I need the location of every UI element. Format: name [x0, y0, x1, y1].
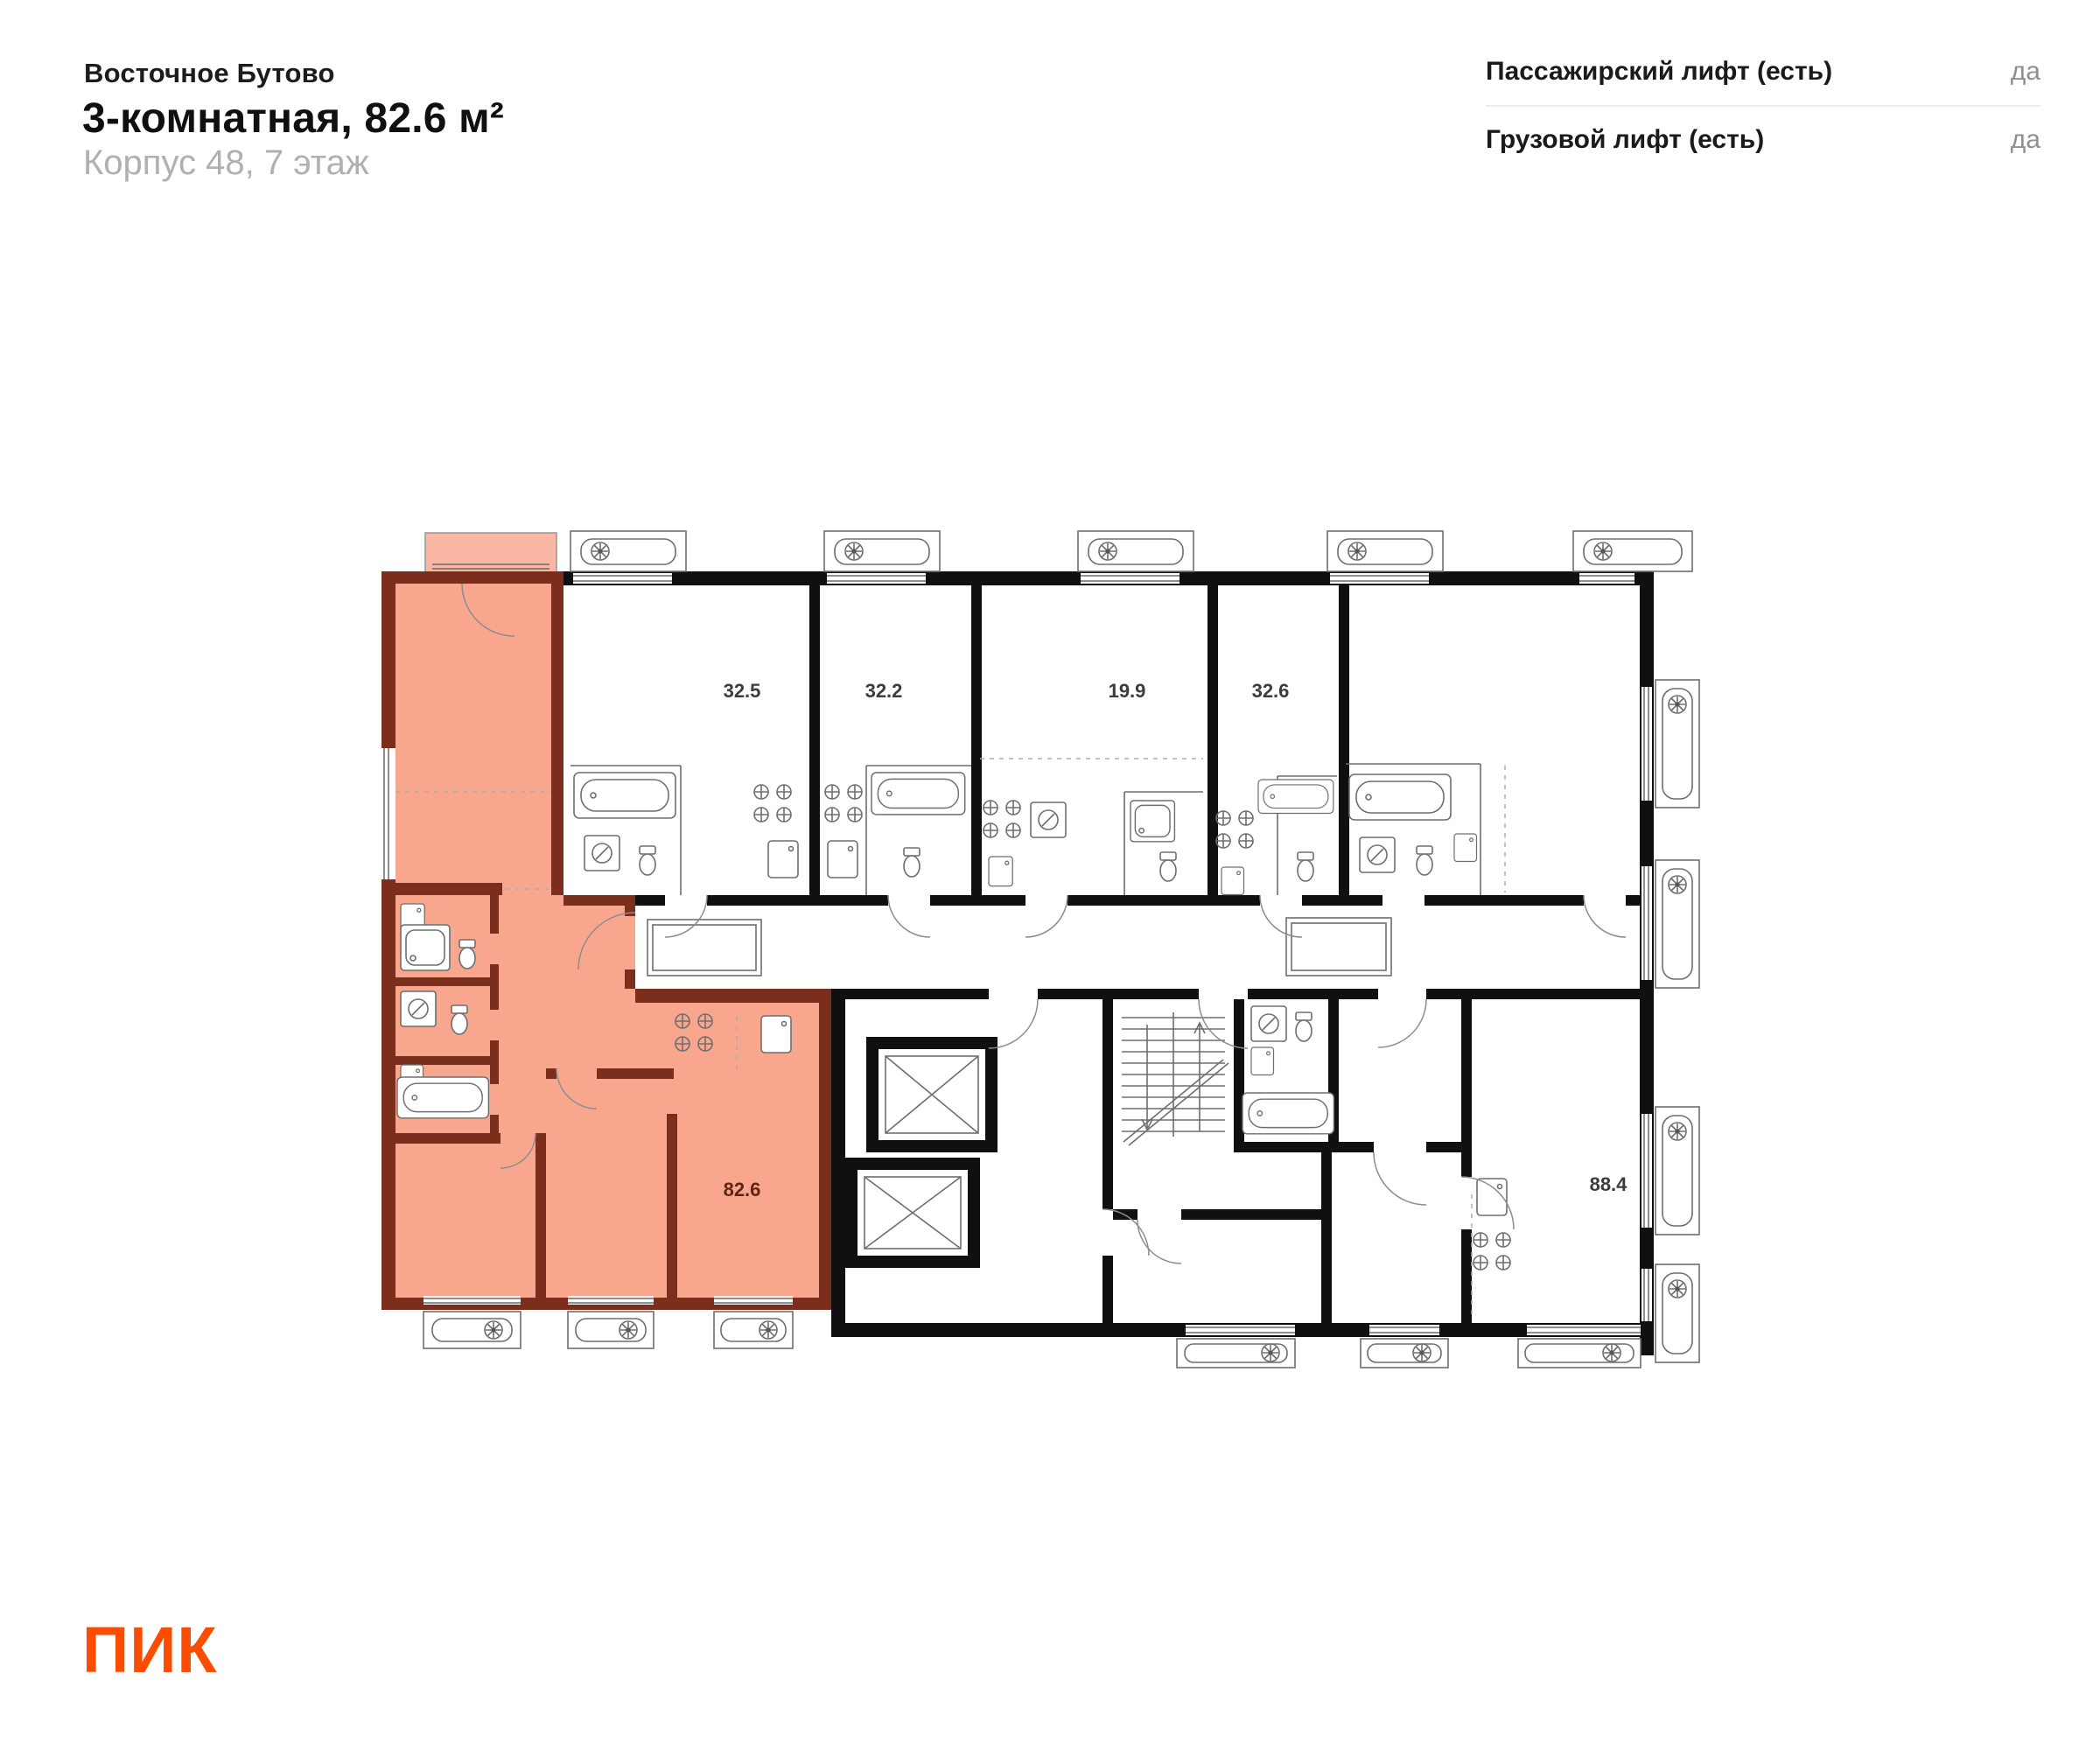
project-name: Восточное Бутово — [84, 58, 335, 89]
balcony — [568, 1312, 654, 1348]
fan-icon — [1594, 542, 1612, 560]
fan-icon — [1669, 876, 1686, 893]
unit-area-label: 19.9 — [1109, 680, 1146, 702]
fan-icon — [845, 542, 863, 560]
amenity-value: да — [2011, 125, 2040, 155]
balcony — [1655, 1264, 1699, 1362]
amenity-row-cargo-lift: Грузовой лифт (есть) да — [1486, 105, 2040, 173]
pik-logo[interactable]: ПИК — [82, 1613, 218, 1687]
balcony — [1573, 531, 1692, 571]
fan-icon — [1413, 1344, 1431, 1361]
fan-icon — [619, 1321, 637, 1339]
fan-icon — [591, 542, 609, 560]
page-title: 3-комнатная, 82.6 м² — [82, 94, 504, 143]
elevator-shaft — [845, 1158, 980, 1268]
fan-icon — [1262, 1344, 1279, 1361]
balcony — [1078, 531, 1193, 571]
amenity-label: Пассажирский лифт (есть) — [1486, 57, 1832, 87]
balcony — [1518, 1339, 1641, 1368]
fan-icon — [1669, 696, 1686, 713]
balcony — [1361, 1339, 1448, 1368]
fan-icon — [1669, 1280, 1686, 1298]
page-subtitle: Корпус 48, 7 этаж — [83, 143, 369, 183]
amenity-row-passenger-lift: Пассажирский лифт (есть) да — [1486, 38, 2040, 105]
balcony — [423, 1312, 521, 1348]
balcony — [1655, 680, 1699, 808]
unit-area-label: 32.5 — [724, 680, 761, 702]
unit-area-label: 88.4 — [1590, 1173, 1628, 1195]
balcony — [824, 531, 940, 571]
fan-icon — [1099, 542, 1116, 560]
fan-icon — [1603, 1344, 1620, 1361]
balcony — [570, 531, 686, 571]
floorplan: 32.5 32.2 19.9 32.6 82.6 88.4 — [376, 529, 1741, 1369]
fan-icon — [1669, 1123, 1686, 1140]
balcony — [1655, 1107, 1699, 1235]
fan-icon — [1348, 542, 1366, 560]
amenities-panel: Пассажирский лифт (есть) да Грузовой лиф… — [1486, 38, 2040, 173]
elevator-shaft — [866, 1037, 997, 1152]
balcony — [1177, 1339, 1295, 1368]
balcony — [714, 1312, 793, 1348]
unit-area-label: 32.6 — [1252, 680, 1290, 702]
fan-icon — [759, 1321, 777, 1339]
balcony — [425, 533, 556, 573]
balcony — [1655, 860, 1699, 988]
highlighted-unit-area-label: 82.6 — [724, 1179, 761, 1200]
amenity-value: да — [2011, 57, 2040, 87]
unit-area-label: 32.2 — [865, 680, 903, 702]
fan-icon — [485, 1321, 502, 1339]
balcony — [1327, 531, 1443, 571]
amenity-label: Грузовой лифт (есть) — [1486, 125, 1764, 155]
